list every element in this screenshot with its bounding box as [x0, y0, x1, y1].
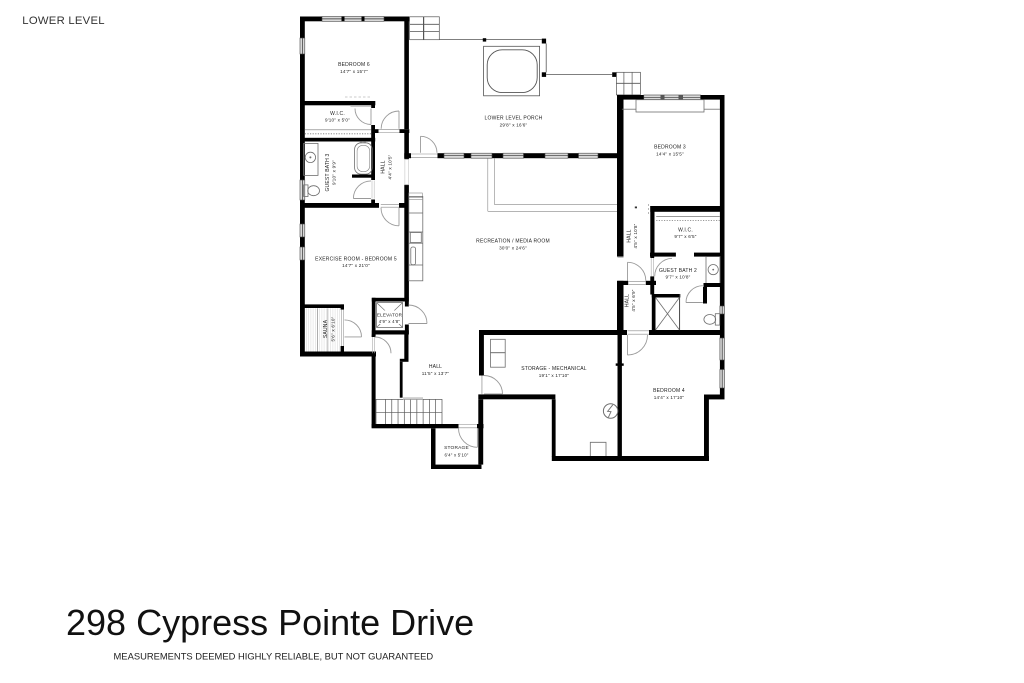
svg-text:4'9" x 4'8": 4'9" x 4'8": [379, 319, 401, 324]
svg-text:SAUNA: SAUNA: [323, 319, 329, 338]
svg-text:11'5" x 13'7": 11'5" x 13'7": [422, 371, 450, 376]
svg-text:LOWER LEVEL PORCH: LOWER LEVEL PORCH: [485, 116, 543, 122]
svg-text:14'7" x 15'7": 14'7" x 15'7": [340, 69, 368, 74]
svg-text:BEDROOM 4: BEDROOM 4: [653, 388, 685, 394]
svg-text:BEDROOM 3: BEDROOM 3: [654, 144, 686, 150]
svg-text:BEDROOM 6: BEDROOM 6: [338, 62, 370, 68]
svg-text:298 Cypress Pointe Drive: 298 Cypress Pointe Drive: [66, 602, 474, 643]
svg-text:9'7" x 10'8": 9'7" x 10'8": [665, 274, 690, 279]
svg-text:HALL: HALL: [627, 229, 633, 242]
svg-text:29'8" x 16'6": 29'8" x 16'6": [500, 123, 528, 128]
svg-text:STORAGE: STORAGE: [444, 445, 469, 451]
svg-text:GUEST BATH 2: GUEST BATH 2: [659, 268, 697, 274]
svg-text:RECREATION / MEDIA ROOM: RECREATION / MEDIA ROOM: [476, 239, 550, 245]
svg-text:4'5" x 6'9": 4'5" x 6'9": [631, 289, 636, 311]
svg-text:5'6" x 6'10": 5'6" x 6'10": [331, 316, 336, 341]
svg-text:HALL: HALL: [429, 364, 442, 370]
svg-text:9'10" x 9'9": 9'10" x 9'9": [332, 160, 337, 185]
svg-text:6'4" x 5'10": 6'4" x 5'10": [444, 453, 468, 458]
svg-text:W.I.C.: W.I.C.: [678, 227, 693, 233]
svg-text:30'0" x 24'6": 30'0" x 24'6": [499, 246, 527, 251]
svg-text:MEASUREMENTS DEEMED HIGHLY REL: MEASUREMENTS DEEMED HIGHLY RELIABLE, BUT…: [114, 651, 434, 662]
svg-text:4'5" x 10'8": 4'5" x 10'8": [633, 223, 638, 248]
svg-text:14'7" x 21'0": 14'7" x 21'0": [342, 263, 370, 268]
svg-text:9'10" x 5'0": 9'10" x 5'0": [325, 118, 350, 123]
svg-text:LOWER LEVEL: LOWER LEVEL: [22, 15, 105, 27]
svg-text:9'7" x 6'5": 9'7" x 6'5": [674, 234, 696, 239]
svg-text:W.I.C.: W.I.C.: [330, 111, 345, 117]
svg-text:GUEST BATH 3: GUEST BATH 3: [325, 153, 331, 191]
svg-text:14'4" x 15'5": 14'4" x 15'5": [656, 151, 684, 156]
svg-text:ELEVATOR: ELEVATOR: [377, 313, 403, 318]
svg-text:HALL: HALL: [381, 160, 387, 173]
svg-text:14'4" x 17'10": 14'4" x 17'10": [654, 395, 685, 400]
svg-text:19'1" x 17'10": 19'1" x 17'10": [539, 373, 570, 378]
svg-text:EXERCISE ROOM - BEDROOM 5: EXERCISE ROOM - BEDROOM 5: [315, 257, 397, 263]
svg-text:STORAGE - MECHANICAL: STORAGE - MECHANICAL: [521, 366, 587, 372]
svg-text:4'4" x 10'5": 4'4" x 10'5": [387, 154, 392, 179]
svg-text:HALL: HALL: [625, 294, 631, 307]
